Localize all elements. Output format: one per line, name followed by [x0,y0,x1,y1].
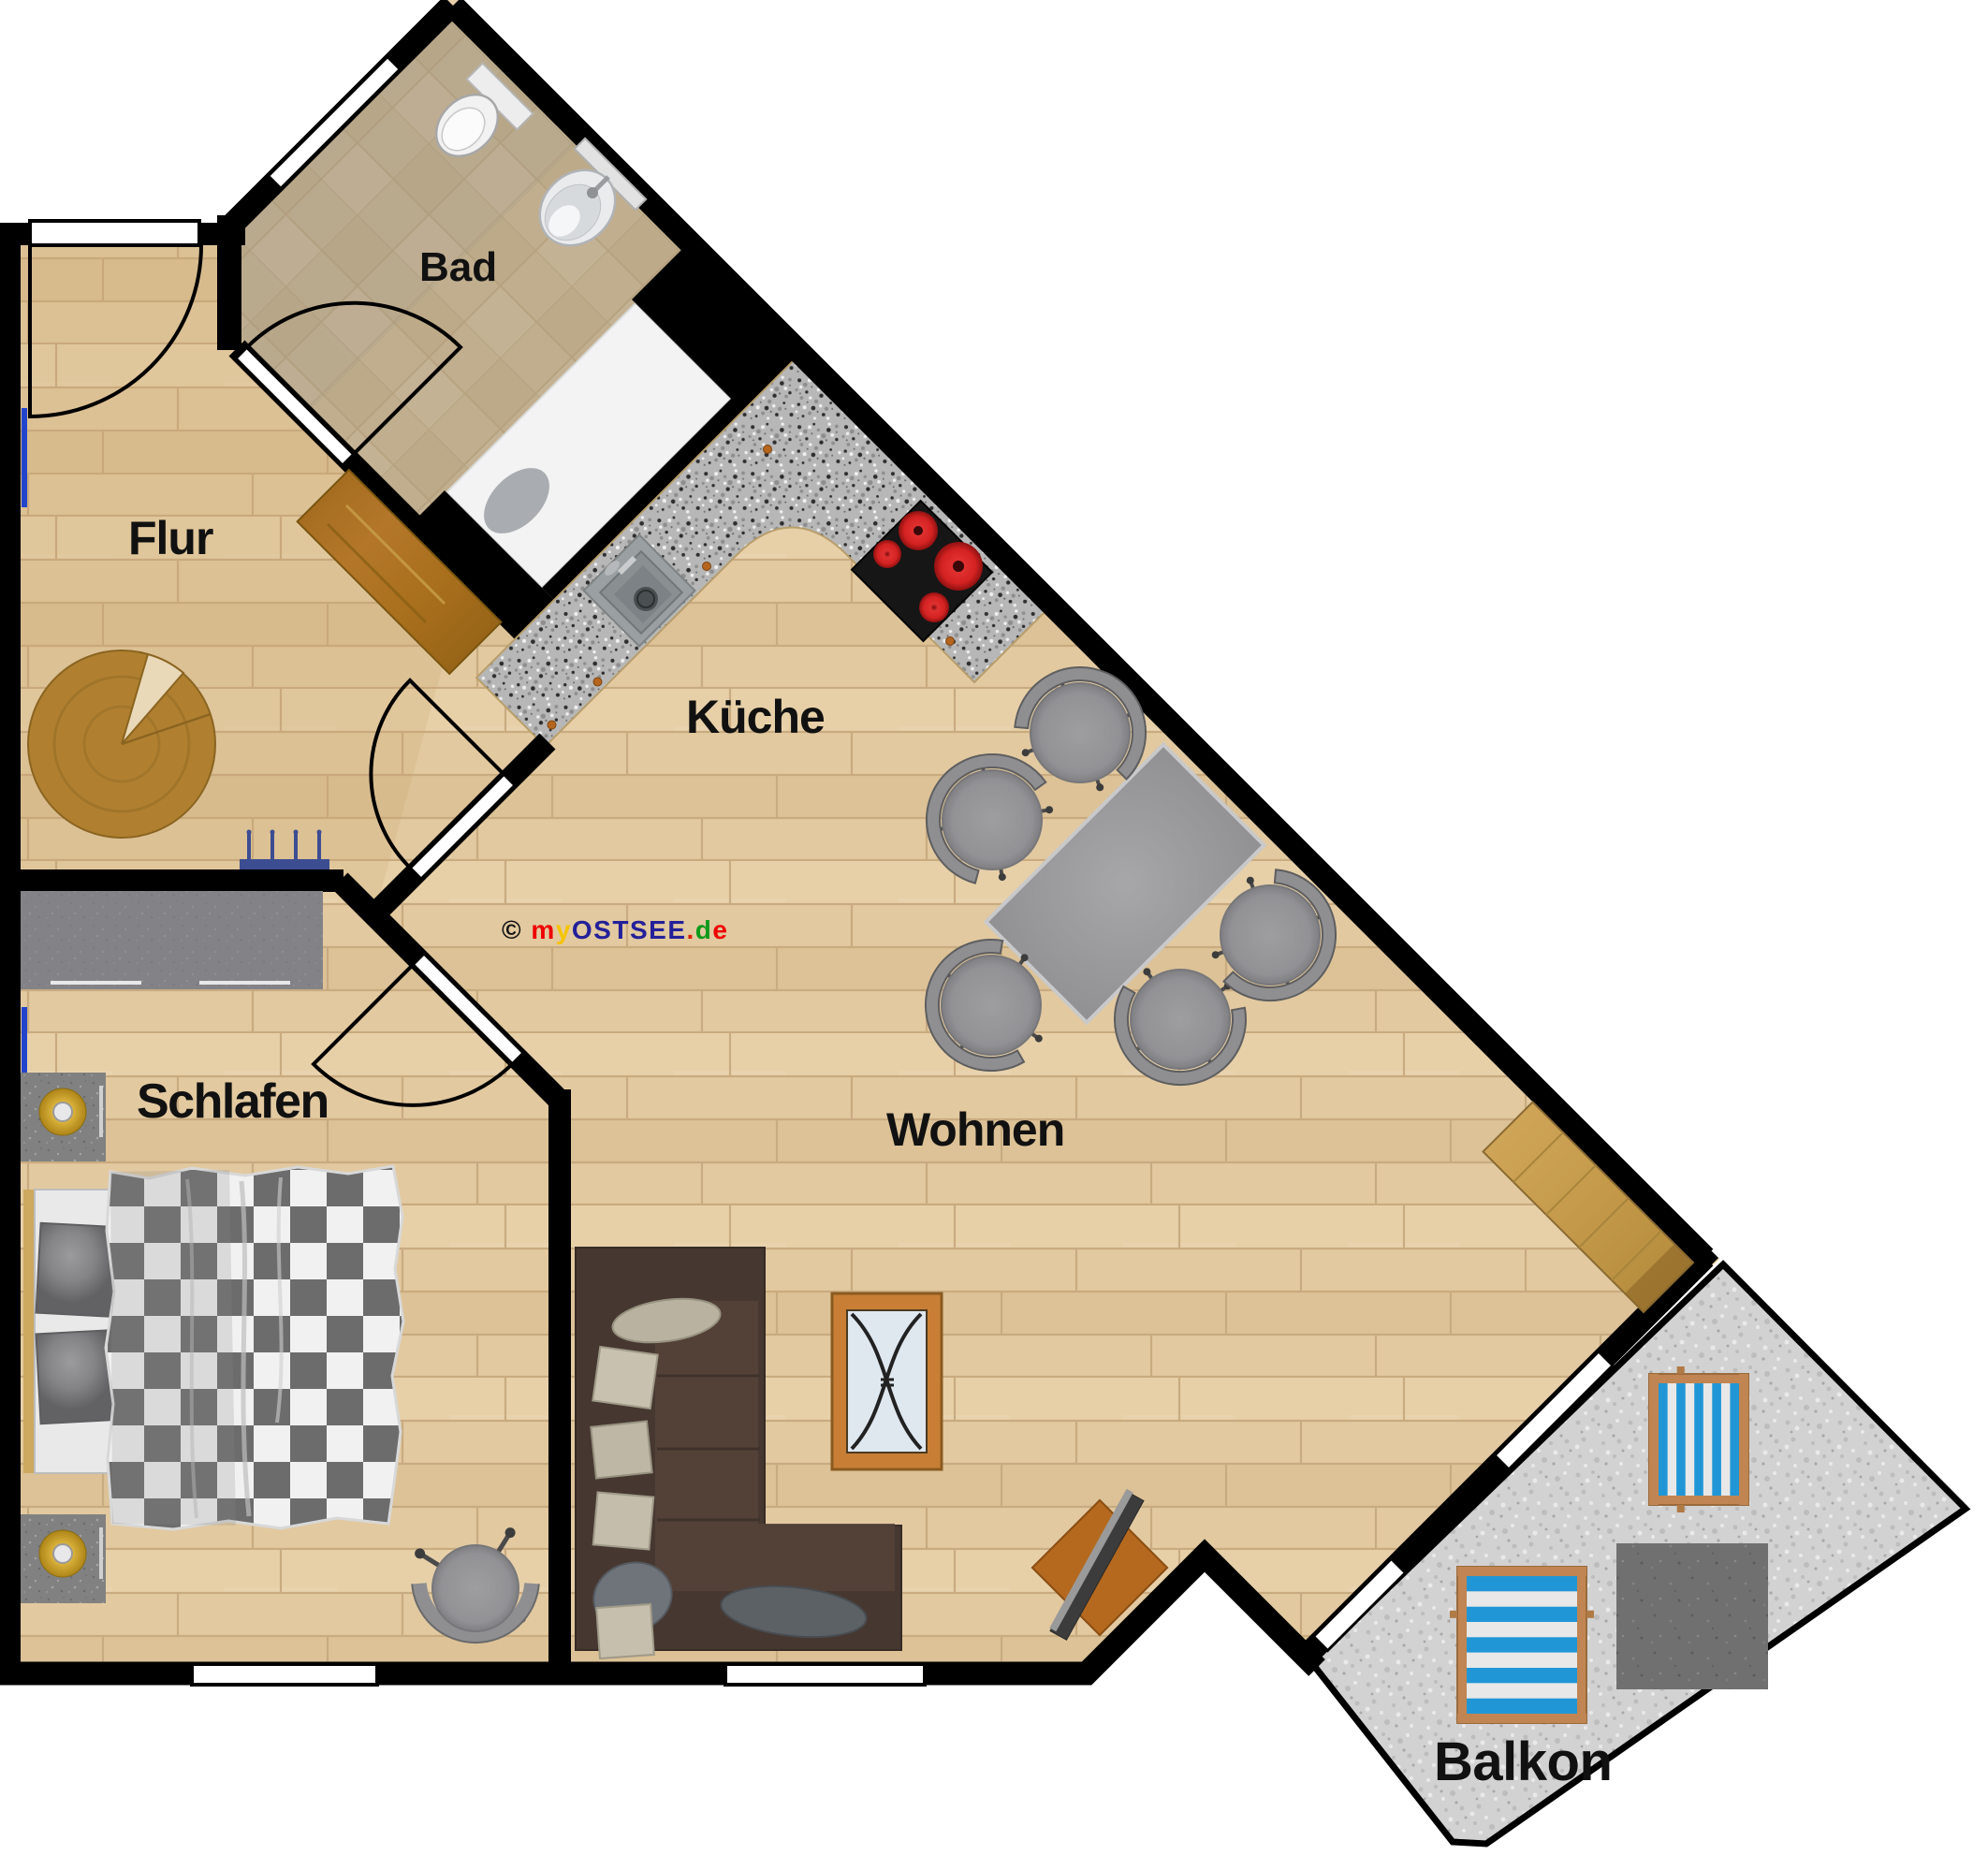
svg-text:© myOSTSEE.de: © myOSTSEE.de [502,915,728,944]
svg-text:Bad: Bad [419,244,497,290]
svg-text:Flur: Flur [128,512,213,564]
svg-text:Küche: Küche [686,691,825,743]
svg-text:Wohnen: Wohnen [886,1103,1064,1156]
svg-text:Balkon: Balkon [1434,1731,1612,1792]
svg-text:Schlafen: Schlafen [137,1074,329,1129]
